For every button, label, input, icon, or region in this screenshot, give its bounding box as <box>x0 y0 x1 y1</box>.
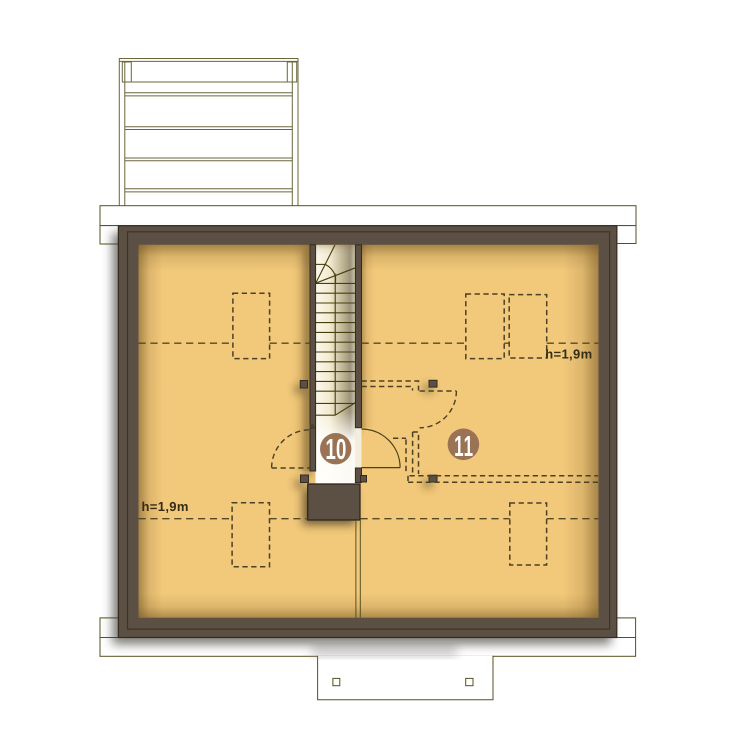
svg-text:h=1,9m: h=1,9m <box>545 347 592 362</box>
svg-text:h=1,9m: h=1,9m <box>142 499 189 514</box>
